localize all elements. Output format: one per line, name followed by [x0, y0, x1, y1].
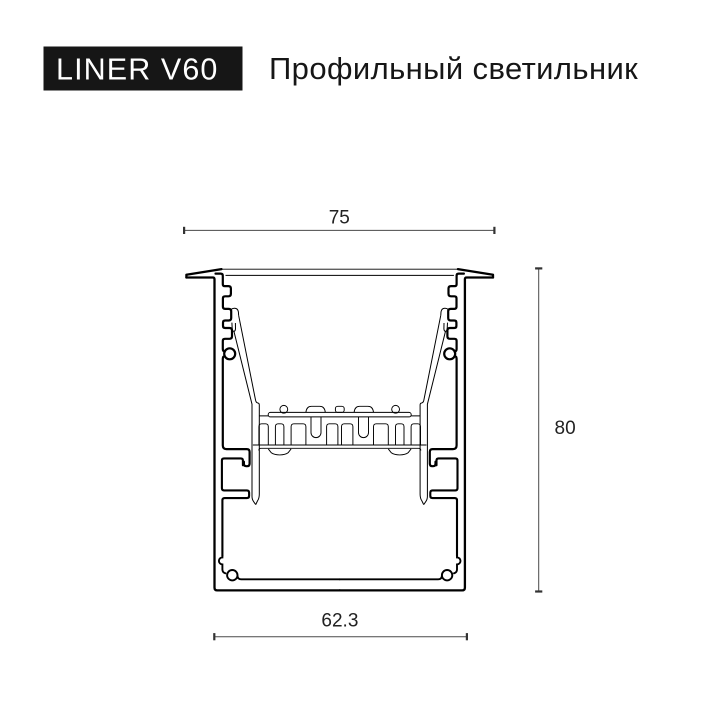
svg-text:LINER V60: LINER V60 [56, 52, 218, 86]
svg-text:Профильный светильник: Профильный светильник [269, 51, 638, 86]
svg-text:80: 80 [555, 418, 576, 439]
svg-text:75: 75 [329, 208, 350, 229]
svg-text:62.3: 62.3 [321, 611, 358, 632]
